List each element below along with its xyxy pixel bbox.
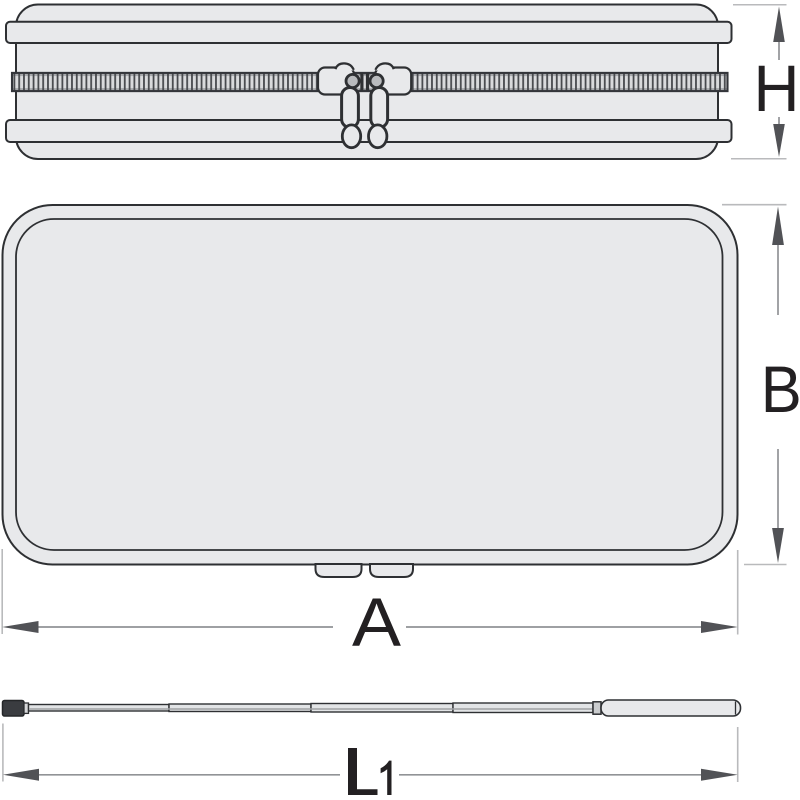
svg-text:H: H	[754, 52, 800, 125]
svg-text:B: B	[761, 352, 800, 426]
svg-text:A: A	[352, 584, 401, 661]
